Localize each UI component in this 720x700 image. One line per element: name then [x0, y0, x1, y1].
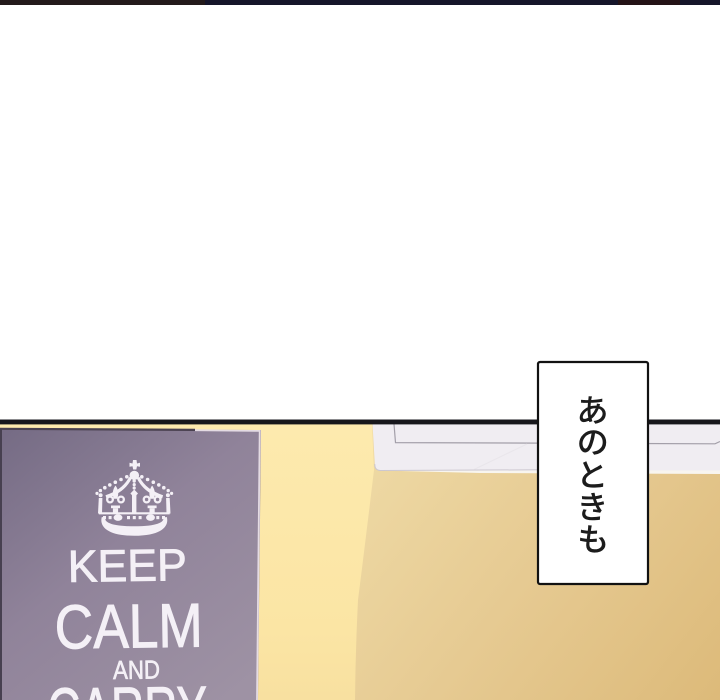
svg-text:KEEP: KEEP	[67, 539, 187, 592]
svg-text:CALM: CALM	[54, 591, 203, 662]
svg-text:CARRY: CARRY	[47, 672, 208, 700]
